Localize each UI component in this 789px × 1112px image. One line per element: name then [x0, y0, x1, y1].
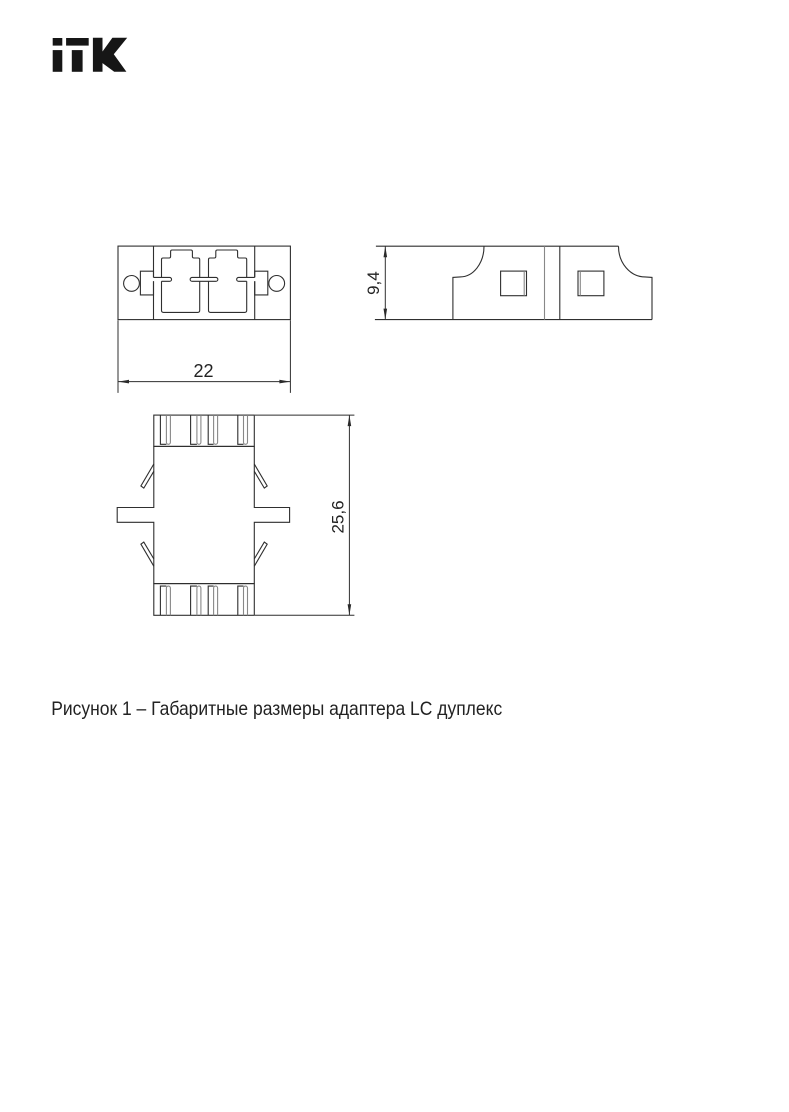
- svg-text:22: 22: [193, 361, 213, 381]
- svg-text:9,4: 9,4: [364, 271, 383, 295]
- svg-text:Рисунок 1 – Габаритные размеры: Рисунок 1 – Габаритные размеры адаптера …: [51, 698, 502, 720]
- svg-text:25,6: 25,6: [329, 500, 348, 533]
